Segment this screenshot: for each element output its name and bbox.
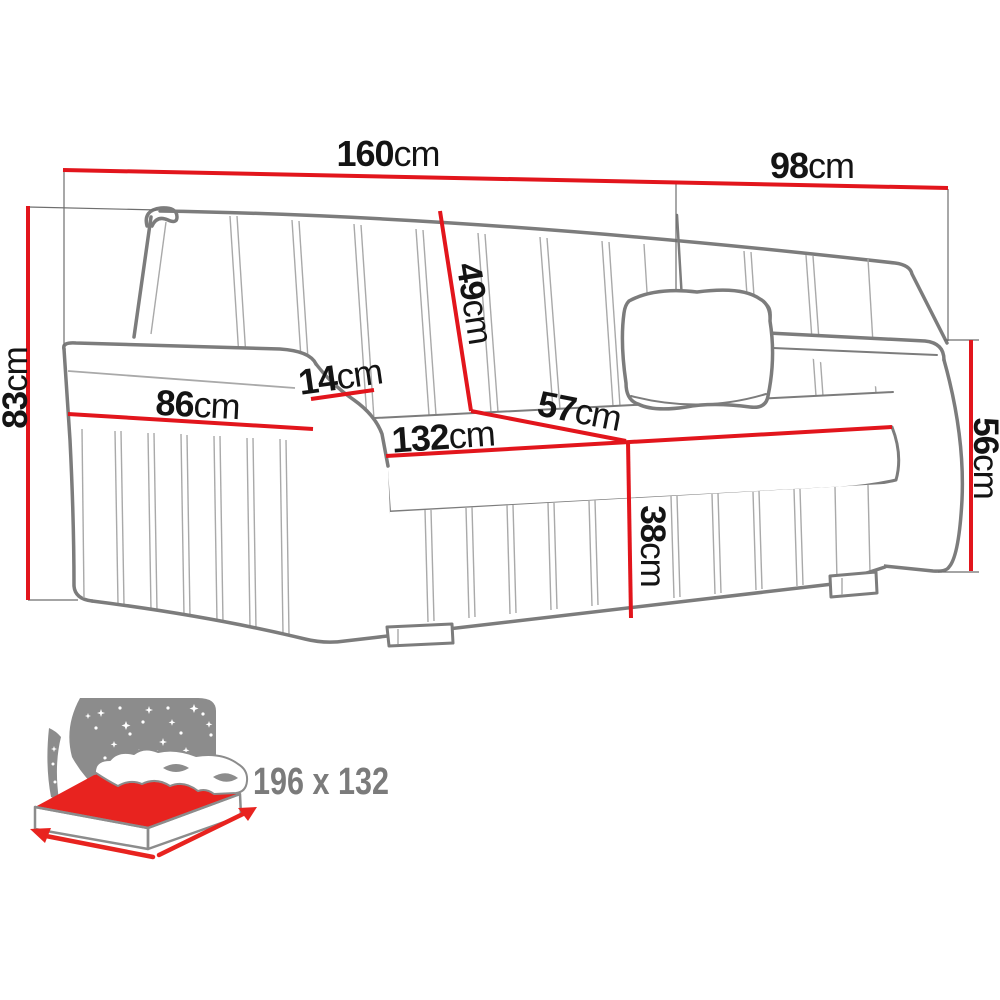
label-total-height: 83cm [0, 347, 35, 429]
label-armrest-height: 56cm [966, 417, 1000, 499]
sofa-bed-icon [30, 698, 257, 857]
diagram-canvas: 160cm 98cm 83cm 49cm 14cm 86cm 57cm 132c… [0, 0, 1000, 1000]
label-seat-height: 38cm [633, 505, 672, 587]
sofa-dimension-diagram: 160cm 98cm 83cm 49cm 14cm 86cm 57cm 132c… [0, 0, 1000, 1000]
pillow [622, 290, 772, 409]
label-total-width: 160cm [336, 133, 439, 174]
left-foot [387, 624, 453, 646]
right-foot [830, 572, 877, 597]
label-total-depth: 98cm [770, 145, 854, 186]
label-seat-width: 132cm [390, 412, 496, 460]
sleeping-area-size-label: 196 x 132 [253, 761, 389, 803]
label-armrest-length: 86cm [155, 382, 241, 427]
